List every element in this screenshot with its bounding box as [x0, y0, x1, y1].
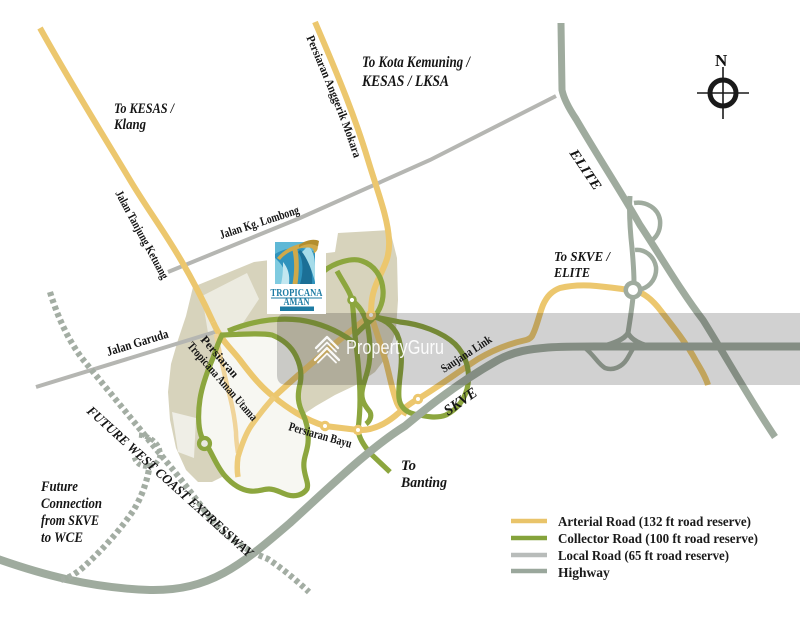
- svg-text:To Kota Kemuning /: To Kota Kemuning /: [362, 54, 471, 71]
- svg-text:Future: Future: [40, 479, 78, 495]
- svg-text:to WCE: to WCE: [41, 530, 83, 546]
- svg-text:PropertyGuru: PropertyGuru: [346, 336, 444, 359]
- svg-text:KESAS / LKSA: KESAS / LKSA: [361, 73, 449, 90]
- svg-text:Banting: Banting: [400, 475, 447, 491]
- svg-text:Klang: Klang: [113, 117, 146, 133]
- svg-text:from SKVE: from SKVE: [41, 513, 99, 529]
- svg-text:To KESAS /: To KESAS /: [114, 101, 175, 117]
- svg-text:Arterial Road (132 ft road res: Arterial Road (132 ft road reserve): [558, 514, 751, 529]
- svg-text:To SKVE /: To SKVE /: [554, 250, 611, 265]
- svg-text:Connection: Connection: [41, 496, 102, 512]
- svg-text:AMAN: AMAN: [284, 297, 310, 308]
- svg-text:ELITE: ELITE: [553, 266, 590, 281]
- svg-text:Highway: Highway: [558, 565, 610, 580]
- svg-text:Collector Road (100 ft road re: Collector Road (100 ft road reserve): [558, 531, 758, 546]
- svg-text:N: N: [715, 51, 728, 70]
- svg-text:Local Road (65 ft road reserve: Local Road (65 ft road reserve): [558, 548, 729, 563]
- svg-text:To: To: [401, 458, 416, 474]
